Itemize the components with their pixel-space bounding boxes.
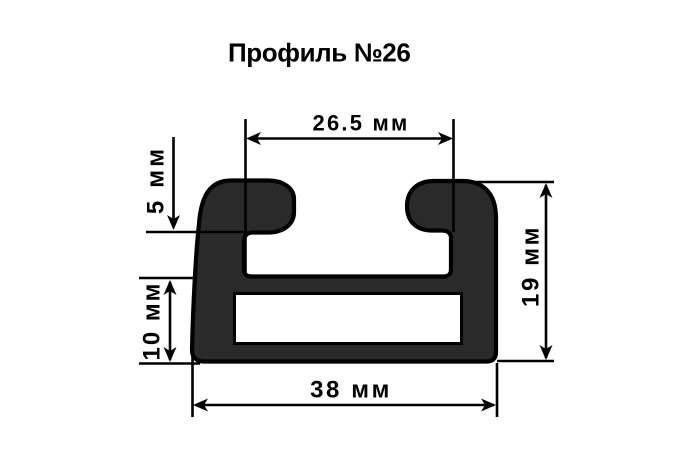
svg-text:10 мм: 10 мм [139,282,166,361]
svg-text:5 мм: 5 мм [143,146,170,214]
svg-text:26.5 мм: 26.5 мм [313,111,410,136]
svg-text:Профиль №26: Профиль №26 [228,38,410,68]
svg-text:19 мм: 19 мм [518,225,545,307]
svg-text:38 мм: 38 мм [310,377,392,404]
